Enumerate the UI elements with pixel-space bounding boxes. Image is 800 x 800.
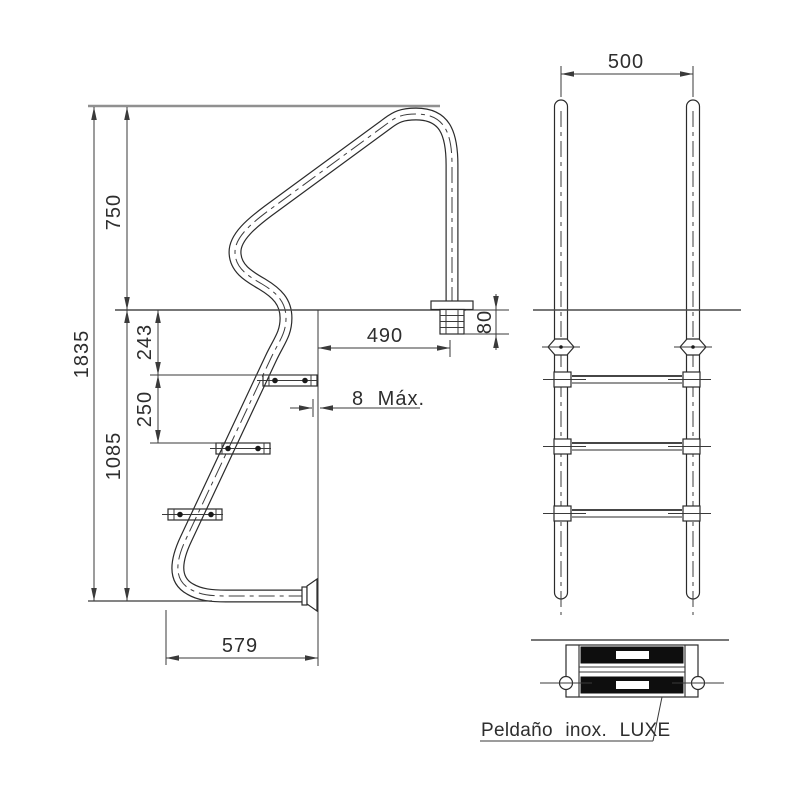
- dim-deck-to-step1: 243: [134, 310, 158, 375]
- tread-window-top: [616, 651, 649, 659]
- dim-anchor-height-label: 80: [474, 310, 496, 334]
- handrail-centerline: [178, 114, 452, 596]
- side-view: [88, 106, 473, 666]
- dim-anchor-offset-label: 490: [367, 325, 403, 347]
- dim-below-deck-label: 1085: [103, 432, 125, 481]
- drawing-canvas: Peldaño inox. LUXE 1835 750 1085 243: [0, 0, 800, 800]
- handrail-tubes-front: [555, 100, 700, 615]
- dim-anchor-height: 80: [474, 294, 496, 350]
- technical-drawing-pool-ladder: Peldaño inox. LUXE 1835 750 1085 243: [0, 0, 800, 800]
- dim-wall-gap-label: 8 Máx.: [352, 388, 425, 410]
- dim-above-deck-label: 750: [103, 194, 125, 230]
- dimensions: 1835 750 1085 243 250 490 80: [71, 51, 693, 665]
- dim-wall-gap: 8 Máx.: [290, 388, 425, 410]
- rung-2: [543, 439, 711, 454]
- rung-1: [543, 372, 711, 387]
- dim-anchor-offset: 490: [318, 325, 450, 348]
- handrail-tube-core: [178, 114, 452, 596]
- step-detail: Peldaño inox. LUXE: [480, 640, 729, 741]
- dim-total-height: 1835: [71, 107, 94, 601]
- dim-rail-spacing: 500: [561, 51, 693, 74]
- dim-below-deck: 1085: [103, 310, 127, 601]
- dim-total-height-label: 1835: [71, 330, 93, 379]
- dim-bottom-reach-label: 579: [222, 635, 258, 657]
- handrail-tube-outline: [178, 114, 452, 596]
- hex-anchor-right: [674, 339, 712, 355]
- rung-3: [543, 506, 711, 521]
- deck-anchor-side: [431, 301, 473, 334]
- dim-deck-to-step1-label: 243: [134, 324, 156, 360]
- dim-above-deck: 750: [103, 107, 127, 310]
- step-2-side: [210, 443, 271, 454]
- hex-anchor-left: [542, 339, 580, 355]
- dim-rail-spacing-label: 500: [608, 51, 644, 73]
- tread-window-bottom: [616, 681, 649, 689]
- step-caption: Peldaño inox. LUXE: [481, 720, 670, 741]
- handrail-side-profile: [178, 114, 452, 596]
- dim-step-spacing-label: 250: [134, 391, 156, 427]
- front-view: [533, 100, 741, 615]
- dim-bottom-reach: 579: [166, 635, 318, 658]
- dim-step-spacing: 250: [134, 375, 158, 443]
- wall-flange: [302, 579, 317, 611]
